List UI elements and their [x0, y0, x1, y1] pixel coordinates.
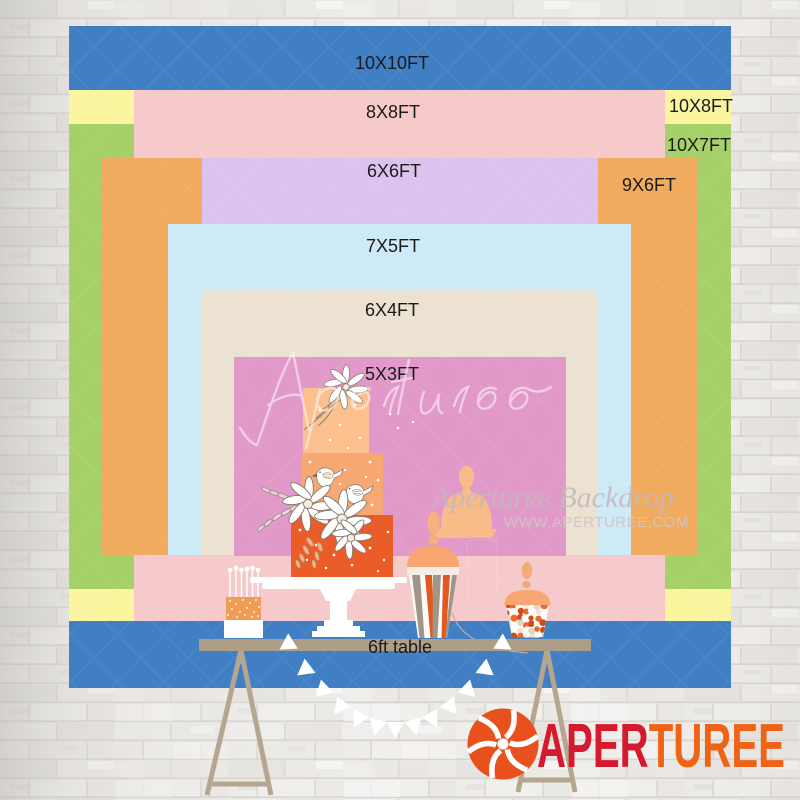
svg-text:8X8FT: 8X8FT — [366, 102, 420, 122]
svg-text:APERTUREE: APERTUREE — [537, 712, 785, 781]
svg-text:10X10FT: 10X10FT — [355, 53, 429, 73]
svg-text:10X8FT: 10X8FT — [669, 96, 733, 116]
svg-text:6ft table: 6ft table — [368, 637, 432, 657]
svg-text:7X5FT: 7X5FT — [366, 236, 420, 256]
svg-text:6X4FT: 6X4FT — [365, 300, 419, 320]
svg-text:10X7FT: 10X7FT — [667, 135, 731, 155]
svg-text:Aperturee Backdrop: Aperturee Backdrop — [430, 481, 674, 514]
svg-text:WWW.APERTUREE.COM: WWW.APERTUREE.COM — [504, 514, 689, 531]
svg-text:9X6FT: 9X6FT — [622, 175, 676, 195]
svg-text:6X6FT: 6X6FT — [367, 161, 421, 181]
